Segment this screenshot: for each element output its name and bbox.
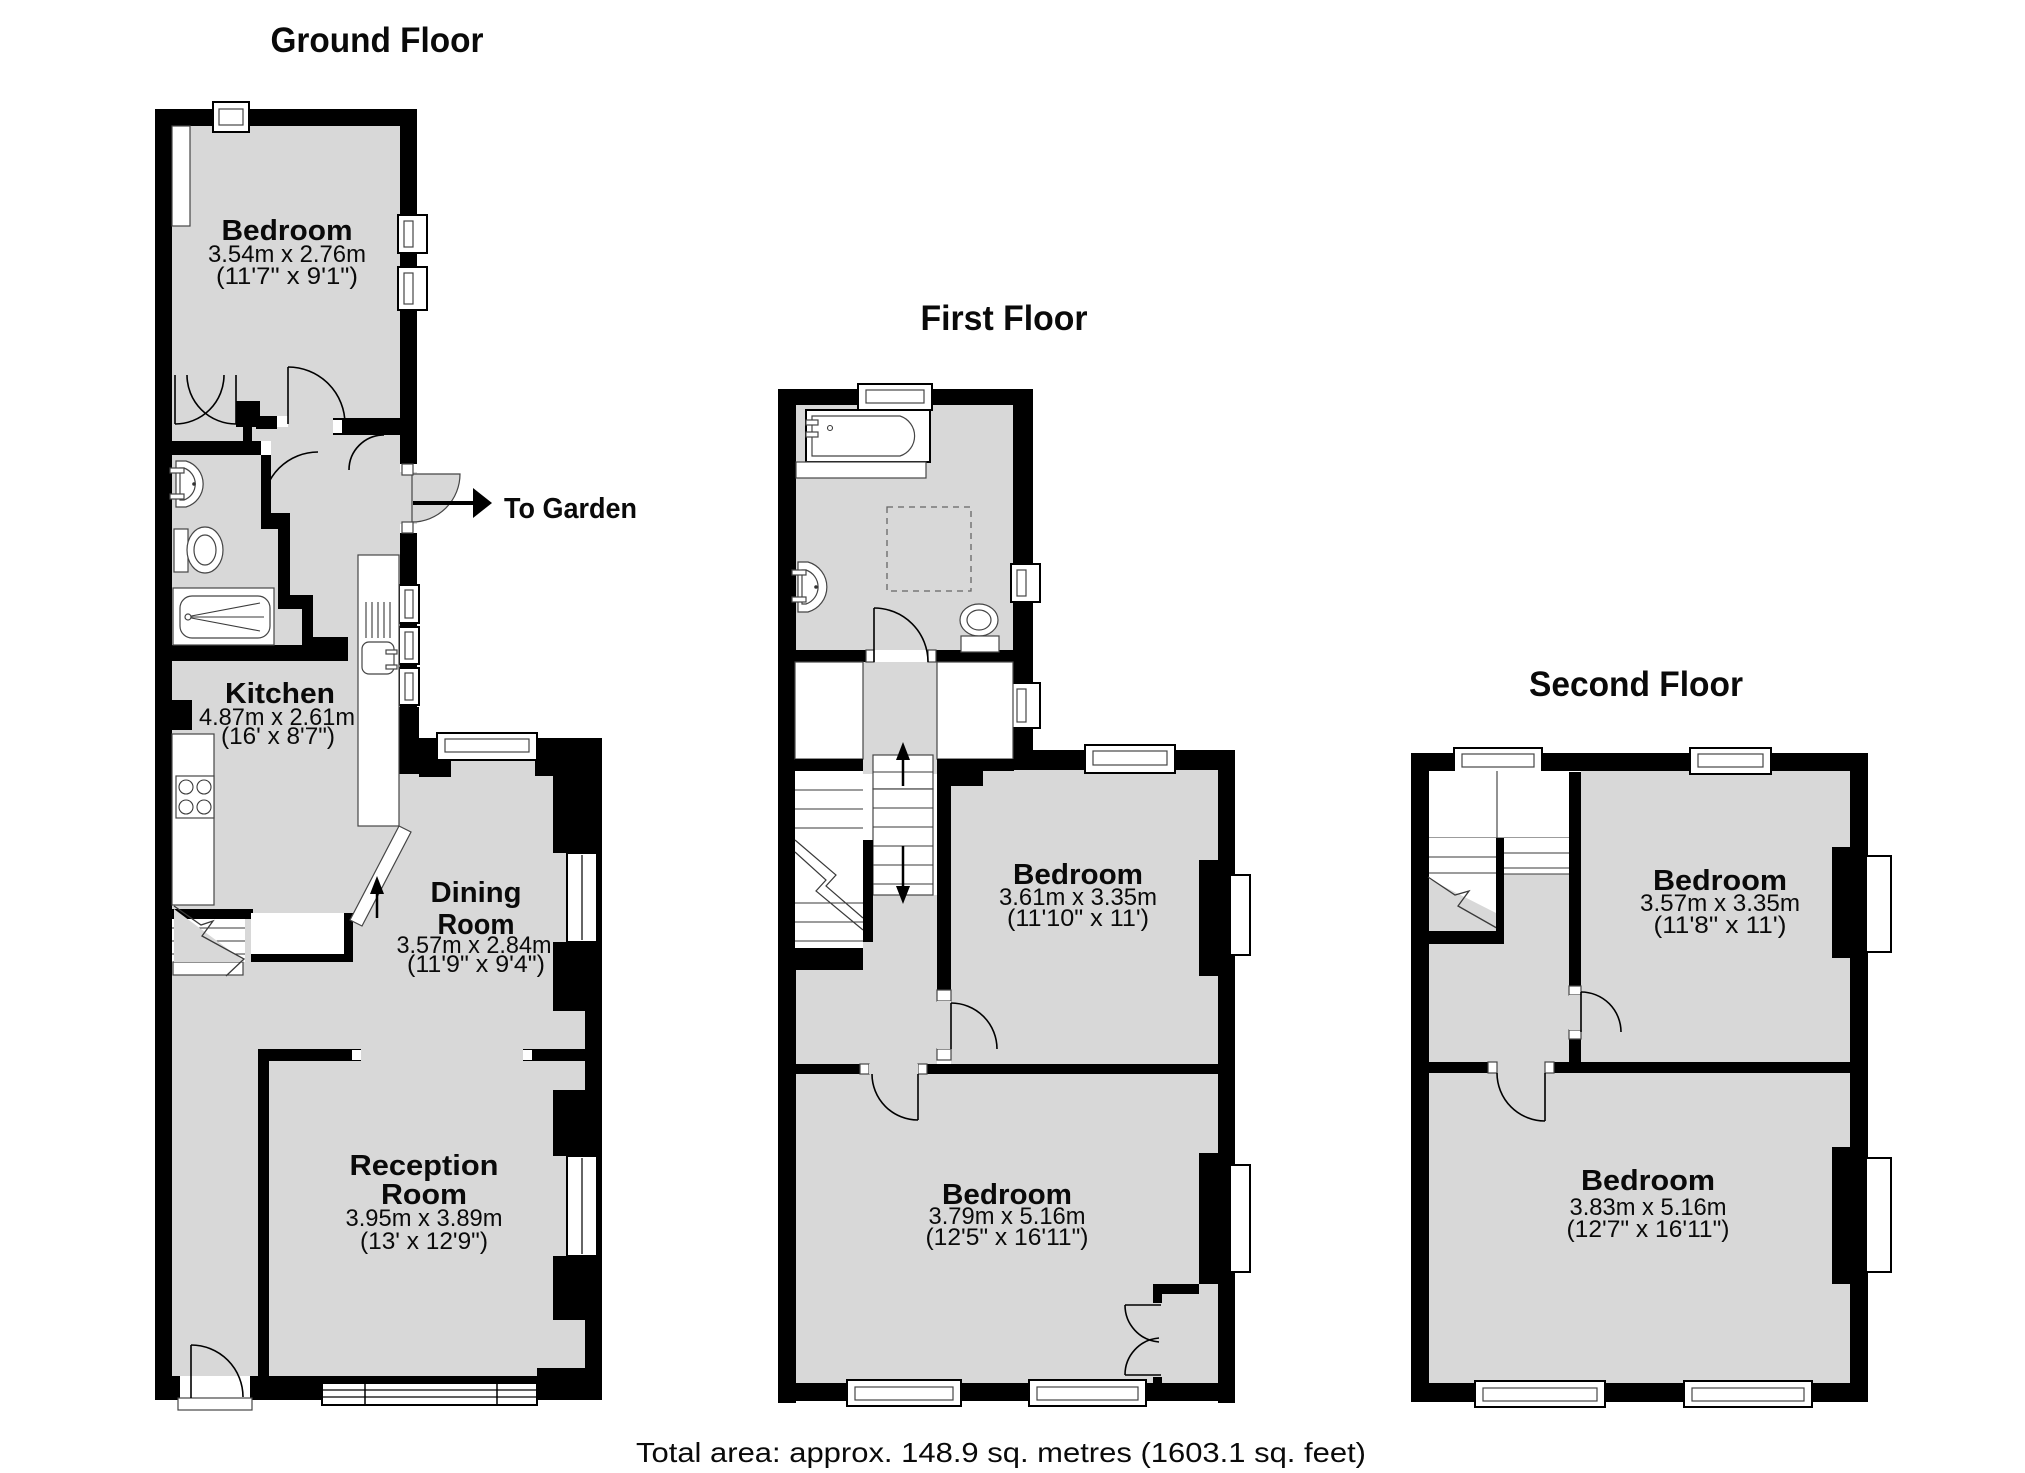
svg-text:Reception: Reception xyxy=(350,1150,499,1182)
svg-text:First Floor: First Floor xyxy=(921,299,1088,338)
svg-text:(11'8" x 11'): (11'8" x 11') xyxy=(1654,912,1787,939)
svg-text:Total area: approx. 148.9 sq.: Total area: approx. 148.9 sq. metres (16… xyxy=(636,1437,1366,1468)
svg-text:(11'10" x 11'): (11'10" x 11') xyxy=(1007,905,1149,932)
svg-text:(11'9" x 9'4"): (11'9" x 9'4") xyxy=(407,951,545,978)
svg-text:Dining: Dining xyxy=(431,877,522,909)
svg-text:(12'7" x 16'11"): (12'7" x 16'11") xyxy=(1567,1216,1730,1243)
svg-text:Second Floor: Second Floor xyxy=(1529,665,1743,704)
svg-text:Bedroom: Bedroom xyxy=(1581,1165,1715,1197)
svg-text:(16' x 8'7"): (16' x 8'7") xyxy=(221,723,335,750)
svg-text:(12'5" x 16'11"): (12'5" x 16'11") xyxy=(926,1224,1089,1251)
svg-text:To Garden: To Garden xyxy=(504,493,637,525)
svg-text:(11'7" x 9'1"): (11'7" x 9'1") xyxy=(216,263,358,290)
svg-text:(13' x 12'9"): (13' x 12'9") xyxy=(360,1228,488,1255)
svg-text:Ground Floor: Ground Floor xyxy=(271,21,484,60)
